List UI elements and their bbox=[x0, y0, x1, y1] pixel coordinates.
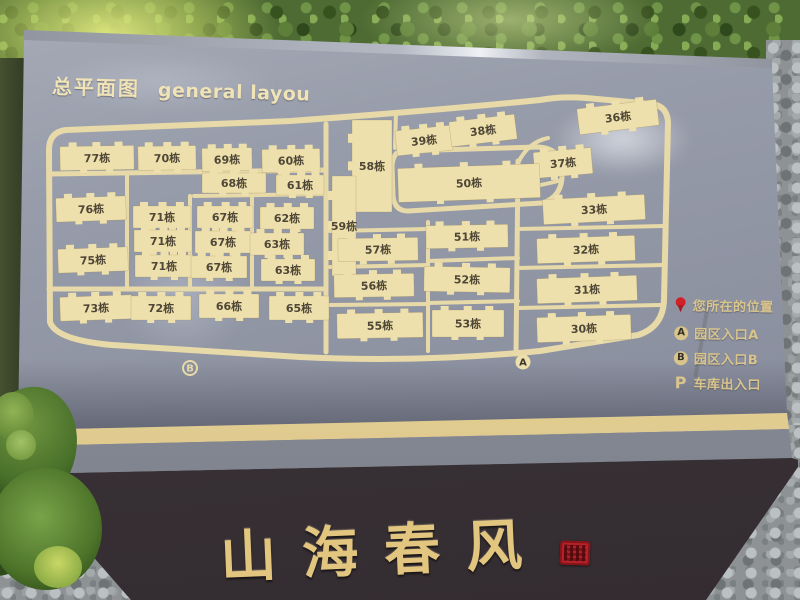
map-legend: 您所在的位置 A 园区入口A B 园区入口B P 车库出入口 bbox=[673, 296, 800, 401]
building-label: 30栋 bbox=[571, 321, 598, 336]
legend-label-garage: 车库出入口 bbox=[693, 373, 761, 393]
building-61栋: 61栋 bbox=[276, 171, 324, 198]
building-73栋: 73栋 bbox=[59, 291, 132, 324]
building-label: 51栋 bbox=[454, 229, 481, 243]
circle-a-icon: A bbox=[674, 326, 688, 340]
building-72栋: 72栋 bbox=[131, 292, 191, 323]
building-32栋: 32栋 bbox=[536, 231, 635, 266]
entrance-marker-a: A bbox=[516, 355, 531, 370]
building-label: 37栋 bbox=[549, 155, 576, 171]
svg-text:B: B bbox=[186, 364, 194, 375]
building-67栋: 67栋 bbox=[191, 252, 247, 281]
building-66栋: 66栋 bbox=[199, 290, 259, 321]
building-label: 67栋 bbox=[212, 210, 238, 224]
building-63栋: 63栋 bbox=[250, 229, 304, 258]
red-seal-stamp bbox=[560, 540, 591, 565]
building-53栋: 53栋 bbox=[432, 306, 504, 340]
building-33栋: 33栋 bbox=[542, 190, 646, 227]
building-label: 57栋 bbox=[365, 242, 392, 256]
road-path bbox=[518, 226, 664, 229]
building-51栋: 51栋 bbox=[426, 220, 509, 251]
building-39栋: 39栋 bbox=[394, 121, 453, 159]
building-label: 63栋 bbox=[264, 237, 290, 251]
building-label: 39栋 bbox=[410, 132, 438, 149]
building-label: 59栋 bbox=[331, 219, 357, 233]
building-63栋: 63栋 bbox=[261, 255, 315, 284]
building-77栋: 77栋 bbox=[60, 141, 135, 173]
building-65栋: 65栋 bbox=[269, 292, 329, 323]
building-71栋: 71栋 bbox=[135, 251, 193, 280]
community-name-calligraphy: 山海春风 bbox=[218, 499, 549, 594]
building-71栋: 71栋 bbox=[134, 226, 192, 255]
building-label: 71栋 bbox=[150, 234, 176, 248]
building-70栋: 70栋 bbox=[138, 141, 197, 173]
building-label: 71栋 bbox=[151, 259, 177, 273]
building-label: 60栋 bbox=[278, 153, 305, 167]
plant-bottom-left bbox=[6, 430, 36, 460]
building-68栋: 68栋 bbox=[202, 169, 266, 196]
legend-label-entrance-a: 园区入口A bbox=[694, 323, 759, 343]
building-38栋: 38栋 bbox=[448, 110, 517, 150]
building-36栋: 36栋 bbox=[576, 95, 659, 138]
building-label: 75栋 bbox=[80, 253, 107, 268]
building-62栋: 62栋 bbox=[260, 203, 314, 232]
building-label: 33栋 bbox=[580, 202, 607, 217]
legend-label-entrance-b: 园区入口B bbox=[694, 348, 759, 368]
building-label: 68栋 bbox=[221, 176, 247, 190]
circle-b-icon: B bbox=[674, 351, 688, 365]
building-75栋: 75栋 bbox=[57, 243, 128, 276]
road-path bbox=[428, 258, 518, 261]
building-52栋: 52栋 bbox=[424, 262, 511, 295]
road-path bbox=[518, 265, 663, 268]
road-path bbox=[330, 304, 428, 305]
building-label: 77栋 bbox=[84, 151, 111, 165]
building-55栋: 55栋 bbox=[337, 308, 424, 341]
photo-community-map-sign: 77栋70栋69栋60栋68栋61栋39栋38栋36栋58栋37栋50栋59栋7… bbox=[0, 0, 800, 600]
building-label: 55栋 bbox=[367, 318, 394, 332]
map-title-zh: 总平面图 bbox=[52, 70, 141, 101]
legend-label-you-are-here: 您所在的位置 bbox=[692, 295, 773, 315]
legend-item-you-are-here: 您所在的位置 bbox=[674, 296, 800, 315]
building-label: 31栋 bbox=[574, 282, 601, 297]
building-31栋: 31栋 bbox=[536, 271, 637, 306]
building-label: 76栋 bbox=[78, 202, 105, 217]
legend-item-entrance-a: A 园区入口A bbox=[674, 324, 800, 343]
building-37栋: 37栋 bbox=[533, 144, 594, 182]
building-label: 65栋 bbox=[286, 301, 312, 315]
building-label: 69栋 bbox=[214, 152, 241, 166]
building-label: 56栋 bbox=[361, 278, 388, 292]
road-path bbox=[518, 305, 660, 308]
building-label: 70栋 bbox=[154, 151, 181, 165]
building-label: 58栋 bbox=[359, 159, 385, 173]
road-path bbox=[428, 301, 518, 303]
letter-p-icon: P bbox=[673, 375, 687, 391]
building-label: 53栋 bbox=[455, 317, 481, 331]
plant-highlight-leaves bbox=[34, 546, 82, 588]
building-label: 71栋 bbox=[149, 210, 175, 224]
building-label: 61栋 bbox=[287, 178, 313, 192]
building-60栋: 60栋 bbox=[262, 144, 321, 175]
map-title-en: general layou bbox=[158, 79, 311, 105]
you-are-here-pin-icon bbox=[674, 297, 686, 313]
legend-item-entrance-b: B 园区入口B bbox=[674, 349, 800, 368]
building-label: 62栋 bbox=[274, 211, 300, 225]
building-label: 66栋 bbox=[216, 299, 242, 313]
building-57栋: 57栋 bbox=[338, 233, 419, 264]
building-label: 73栋 bbox=[83, 301, 110, 316]
building-label: 50栋 bbox=[456, 176, 483, 191]
building-label: 67栋 bbox=[210, 235, 236, 249]
building-56栋: 56栋 bbox=[334, 269, 415, 300]
building-76栋: 76栋 bbox=[55, 192, 126, 225]
building-label: 67栋 bbox=[206, 260, 232, 274]
building-label: 63栋 bbox=[275, 263, 301, 277]
building-label: 72栋 bbox=[148, 301, 174, 315]
building-69栋: 69栋 bbox=[202, 144, 253, 175]
building-67栋: 67栋 bbox=[195, 227, 251, 256]
building-67栋: 67栋 bbox=[197, 202, 253, 231]
entrance-marker-b: B bbox=[183, 361, 197, 375]
building-label: 52栋 bbox=[454, 272, 481, 286]
svg-text:A: A bbox=[519, 358, 527, 369]
building-label: 32栋 bbox=[573, 242, 600, 257]
legend-item-garage: P 车库出入口 bbox=[673, 374, 799, 393]
